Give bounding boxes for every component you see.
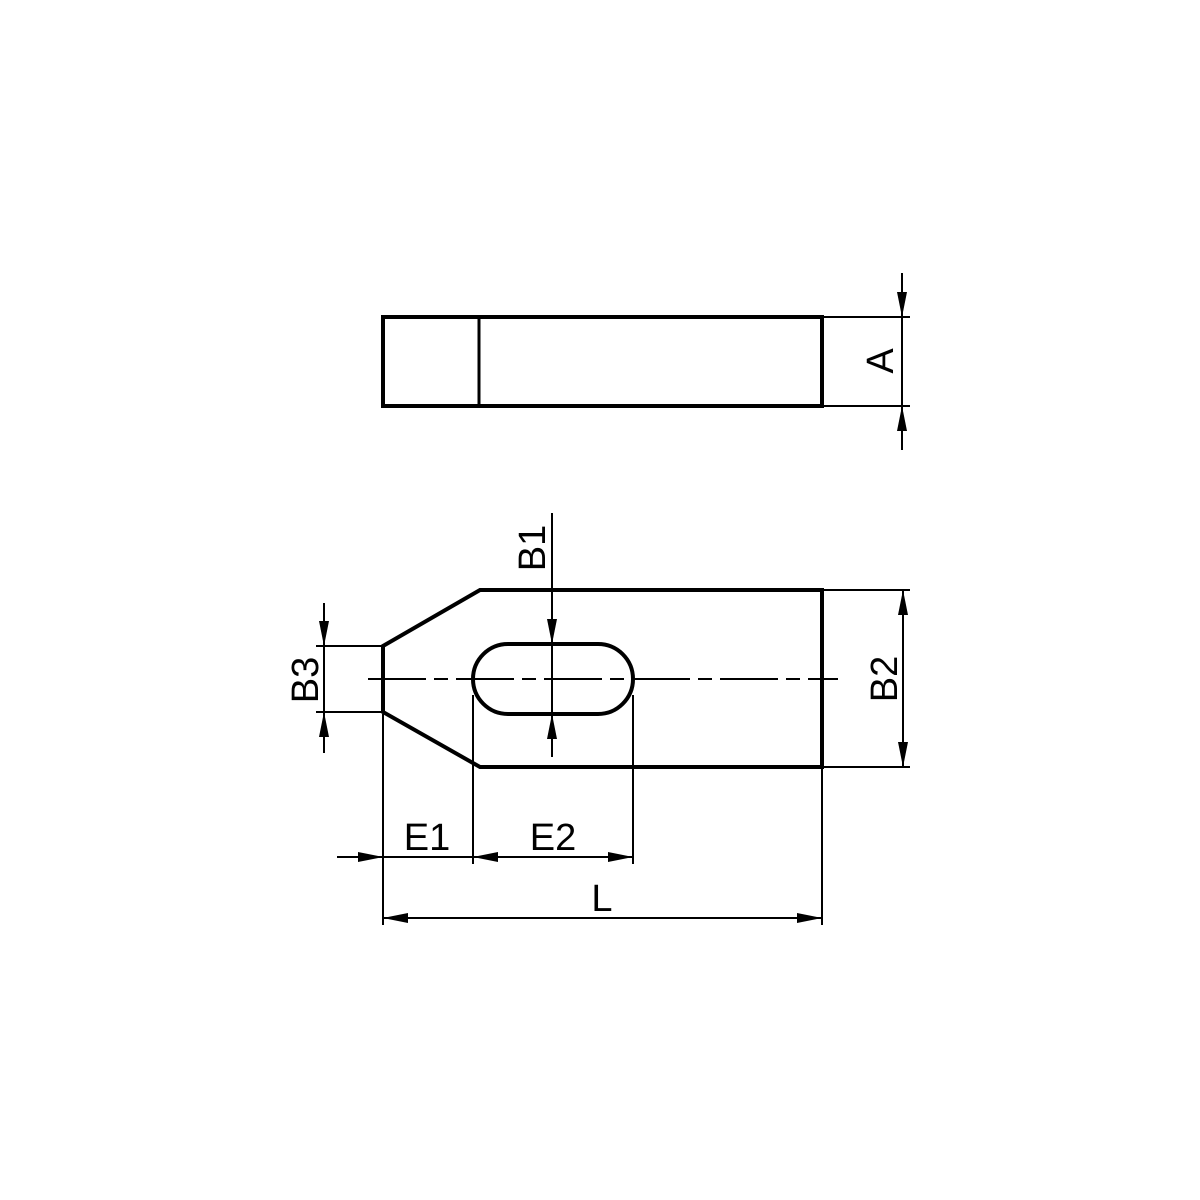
dim-l-arrow-left — [383, 913, 408, 923]
dim-e2-arrow-right — [608, 852, 633, 862]
label-b1: B1 — [512, 525, 554, 571]
label-b3: B3 — [285, 657, 327, 703]
part-outlines — [383, 317, 822, 767]
label-b2: B2 — [864, 656, 906, 702]
dim-a-arrow-top — [897, 292, 907, 317]
label-e2: E2 — [530, 817, 576, 859]
dim-b3-arrow-top — [319, 621, 329, 646]
dimension-labels: A B1 B2 B3 E1 E2 L — [285, 348, 906, 920]
strap-clamp-drawing: A B1 B2 B3 E1 E2 L — [0, 0, 1200, 1200]
label-l: L — [591, 878, 612, 920]
label-e1: E1 — [404, 817, 450, 859]
dim-b2-arrow-bottom — [898, 742, 908, 767]
dim-e1-arrow-left — [358, 852, 383, 862]
dim-b1-arrow-bottom — [547, 714, 557, 739]
dim-b3-arrow-bottom — [319, 712, 329, 737]
dim-l-arrow-right — [797, 913, 822, 923]
side-view-outline — [383, 317, 822, 406]
dim-b1-arrow-top — [547, 619, 557, 644]
label-a: A — [860, 348, 902, 374]
dim-a-arrow-bottom — [897, 406, 907, 431]
dim-b2-arrow-top — [898, 590, 908, 615]
technical-drawing-page: A B1 B2 B3 E1 E2 L — [0, 0, 1200, 1200]
dim-e2-arrow-left — [473, 852, 498, 862]
